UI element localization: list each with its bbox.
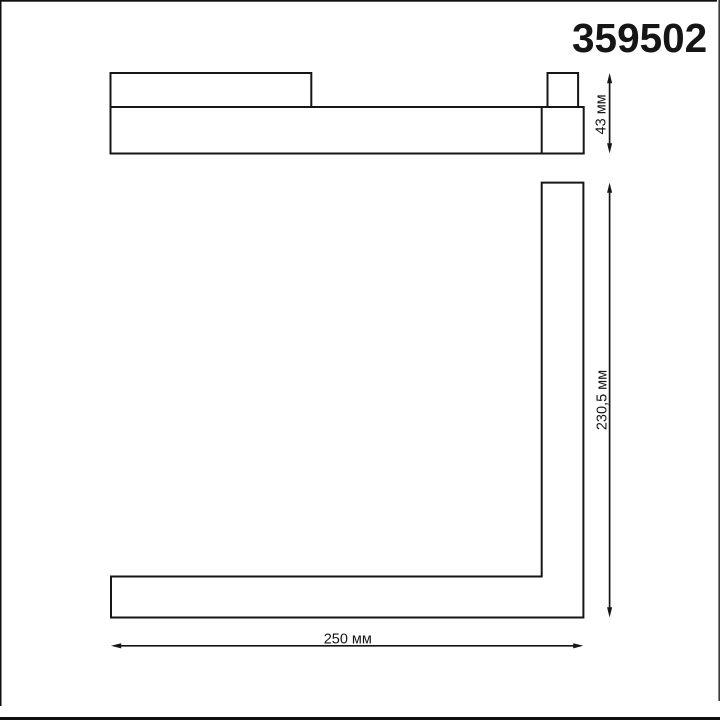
svg-text:230,5 мм: 230,5 мм [594, 370, 610, 430]
svg-text:250 мм: 250 мм [324, 632, 372, 648]
svg-text:43 мм: 43 мм [594, 94, 610, 134]
svg-text:359502: 359502 [572, 15, 707, 61]
